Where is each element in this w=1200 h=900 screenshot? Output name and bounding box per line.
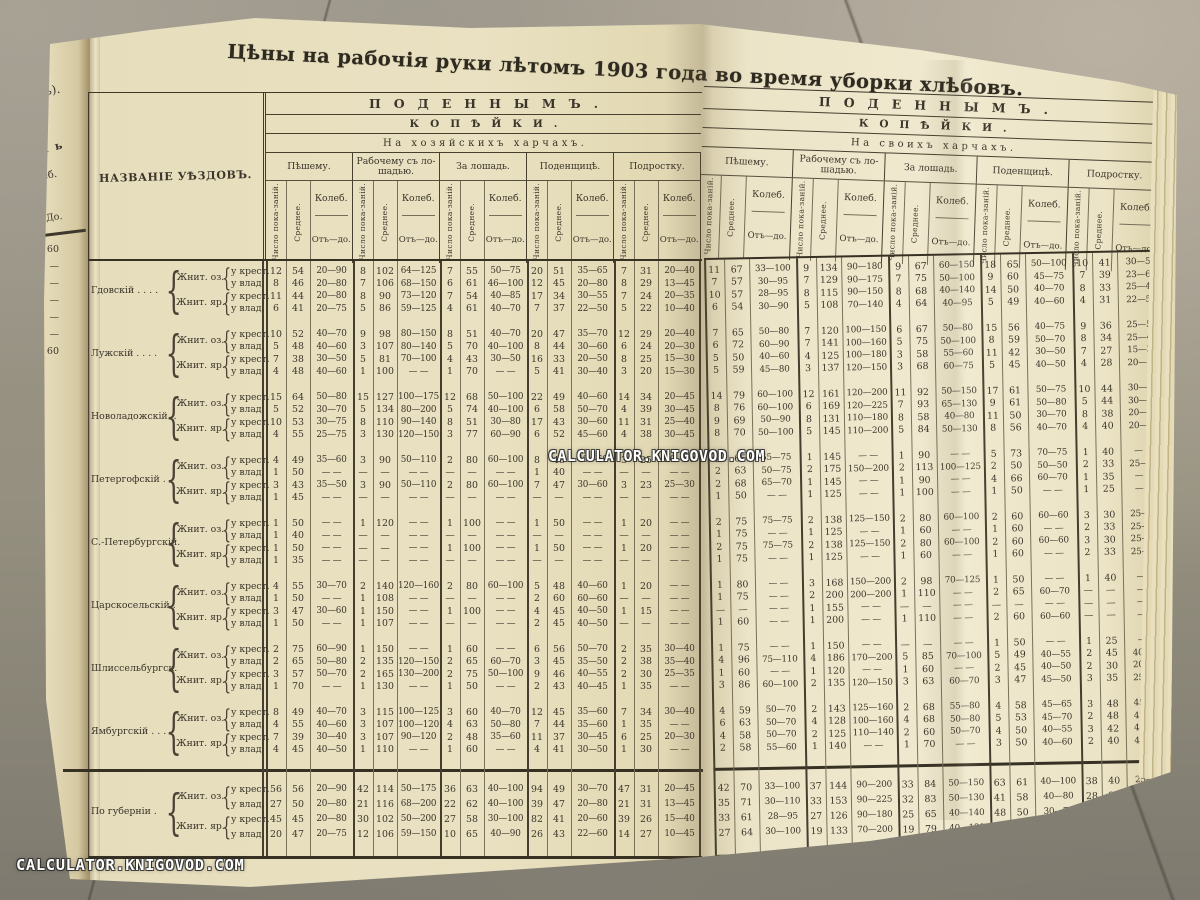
data-cell: — xyxy=(373,530,397,543)
data-cell: 169 xyxy=(819,400,844,413)
data-cell: 64 xyxy=(286,391,310,404)
brace-glyph: { xyxy=(222,812,231,841)
data-cell: 45—70 xyxy=(1033,711,1080,724)
data-cell: 61 xyxy=(460,303,484,316)
data-cell: 141 xyxy=(817,337,842,350)
data-cell: 80 xyxy=(460,479,484,492)
data-cell: 60 xyxy=(913,524,938,537)
data-cell: 60—100 xyxy=(484,479,527,492)
data-cell: 20 xyxy=(1082,818,1102,833)
data-cell: 50—110 xyxy=(397,479,440,492)
crop-brace: { xyxy=(223,391,231,416)
subheader-fluct-label: Колеб. xyxy=(402,181,435,216)
data-cell: 12 xyxy=(353,827,373,842)
data-cell: 35 xyxy=(714,795,734,810)
data-cell: 61 xyxy=(1002,384,1027,397)
data-cell: 60—100 xyxy=(484,580,527,593)
data-cell: 2 xyxy=(892,462,912,475)
data-cell: 20—40 xyxy=(658,265,701,278)
data-cell: — — xyxy=(397,605,440,618)
data-cell: 65 xyxy=(460,656,484,669)
data-cell: 107 xyxy=(373,719,397,732)
data-cell: 5 xyxy=(799,425,819,438)
data-cell: 60—90 xyxy=(750,338,797,351)
subheader-count: Число пока-заній. xyxy=(353,181,373,263)
data-cell: 130 xyxy=(373,681,397,694)
data-cell: 20—50 xyxy=(1127,817,1174,833)
data-cell: 33 xyxy=(547,353,571,366)
data-cell: 10—45 xyxy=(658,827,701,842)
data-cell: 2 xyxy=(527,593,547,606)
district-column-header: НАЗВАНІЕ УѢЗДОВЪ. xyxy=(89,93,266,259)
district-block: 76550—807120100—15066750—80155640—759362… xyxy=(705,319,1166,377)
data-cell: 50—75 xyxy=(1027,383,1074,396)
data-cell: 40 xyxy=(1096,445,1121,458)
data-cell: 115 xyxy=(817,286,842,299)
data-cell: 50—70 xyxy=(757,716,804,729)
data-cell: 12 xyxy=(527,706,547,719)
data-cell: — — xyxy=(847,601,894,614)
data-cell: 40 xyxy=(547,467,571,480)
prev-page-fragment: Отъ. xyxy=(5,204,29,218)
data-cell: 137 xyxy=(818,362,843,375)
data-cell: 8 xyxy=(353,416,373,429)
data-cell: 116 xyxy=(373,797,397,812)
data-cell: 50—80 xyxy=(484,719,527,732)
data-cell: — — xyxy=(310,542,353,555)
prev-page-rule xyxy=(0,229,86,242)
data-cell: 58 xyxy=(733,742,758,755)
data-cell: 5 xyxy=(1075,395,1095,408)
data-cell: 7 xyxy=(1074,345,1094,358)
data-cell: 60—70 xyxy=(1029,471,1076,484)
data-cell: 20—30 xyxy=(658,731,701,744)
data-cell: — xyxy=(440,618,460,631)
data-cell: 27 xyxy=(1094,344,1119,357)
data-cell: — — xyxy=(310,492,353,505)
data-cell: 57 xyxy=(286,668,310,681)
data-cell: 4 xyxy=(713,730,733,743)
data-cell: — xyxy=(527,555,547,568)
data-cell: 19 xyxy=(806,823,826,838)
data-cell: — — xyxy=(397,517,440,530)
crop-label: Жнит. яр. xyxy=(178,353,223,378)
data-cell: — — xyxy=(940,662,987,675)
data-cell: 2 xyxy=(614,643,634,656)
prev-page-footnote-line: ъ). xyxy=(0,540,40,557)
data-cell: 40—50 xyxy=(571,605,614,618)
data-cell: 125 xyxy=(820,488,845,501)
data-cell: 55—60 xyxy=(758,741,805,754)
data-cell: 11 xyxy=(266,290,286,303)
data-cell: 2 xyxy=(984,460,1004,473)
data-cell: 50 xyxy=(286,618,310,631)
data-cell: 3 xyxy=(988,674,1008,687)
data-cell: 41 xyxy=(1092,256,1117,269)
owner-label: у влад. xyxy=(231,593,266,606)
data-cell: 68 xyxy=(910,360,935,373)
data-cell: — — xyxy=(658,593,701,606)
data-cell: 30 xyxy=(1097,508,1122,521)
subheader-range: Колеб.Отъ—до. xyxy=(484,181,527,263)
data-cell: 30—40 xyxy=(658,706,701,719)
data-cell: 45—50 xyxy=(1033,673,1080,686)
data-cell: 5 xyxy=(797,299,817,312)
district-brace: { xyxy=(169,580,178,630)
data-cell: 55 xyxy=(460,265,484,278)
data-cell: 120—225 xyxy=(844,399,891,412)
data-cell: 9 xyxy=(980,271,1000,284)
photo-scene: мѣрахъ). ень Колеб. Отъ. До. 4260———————… xyxy=(0,0,1200,900)
table-right-header: ПОДЕННЫМЪ. КОПѢЙКИ. На своихъ харчахъ. П… xyxy=(698,86,1166,269)
owner-label: у крест. xyxy=(231,517,266,530)
data-cell: — — xyxy=(310,530,353,543)
data-cell: 40 xyxy=(1101,735,1126,748)
prev-page-footnote-line: ка- xyxy=(0,507,40,524)
data-cell: 28—95 xyxy=(759,809,806,825)
data-cell: 50 xyxy=(286,593,310,606)
data-cell: 8 xyxy=(614,353,634,366)
subheader-fluct-label: Колеб. xyxy=(1027,186,1061,222)
table-right-page: ПОДЕННЫМЪ. КОПѢЙКИ. На своихъ харчахъ. П… xyxy=(704,86,1166,253)
data-cell: 30—50 xyxy=(571,744,614,757)
district-name: Новоладожскій. . xyxy=(89,391,169,441)
data-cell: 81 xyxy=(373,353,397,366)
data-cell: 1 xyxy=(440,643,460,656)
subheader-average: Среднее. xyxy=(460,181,484,263)
data-cell: 37 xyxy=(547,731,571,744)
data-cell: 31 xyxy=(634,797,658,812)
data-cell: — xyxy=(614,593,634,606)
crop-label: Жнит. яр. xyxy=(178,542,223,567)
data-cell: 49 xyxy=(1001,296,1026,309)
group-subheaders: Число пока-заній.Среднее.Колеб.Отъ—до. xyxy=(790,178,884,263)
data-cell: 15—40 xyxy=(658,812,701,827)
header-group: Пѣшему.Число пока-заній.Среднее.Колеб.От… xyxy=(698,147,794,260)
district-block: 116733—100913490—18096760—150186550—1001… xyxy=(704,256,1165,314)
subheader-average-label: Среднее. xyxy=(819,201,829,240)
data-cell: 200 xyxy=(822,589,847,602)
data-cell: 59 xyxy=(732,704,757,717)
data-cell: 7 xyxy=(705,327,725,340)
data-cell: 25—35 xyxy=(658,668,701,681)
crop-label: Жнит. оз. xyxy=(178,580,223,605)
data-cell: 68 xyxy=(909,285,934,298)
data-cell: 145 xyxy=(820,475,845,488)
data-cell: 70 xyxy=(734,780,759,795)
data-cell: 110—140 xyxy=(850,727,897,740)
data-cell: 40—140 xyxy=(934,284,981,297)
data-cell: 1 xyxy=(985,523,1005,536)
data-cell: 1 xyxy=(353,366,373,379)
data-cell: 200 xyxy=(823,614,848,627)
data-cell: 50 xyxy=(286,797,310,812)
data-cell: — xyxy=(460,467,484,480)
data-cell: 33 xyxy=(714,810,734,825)
data-cell: 2 xyxy=(1077,521,1097,534)
data-cell: 21 xyxy=(614,797,634,812)
data-cell: 4 xyxy=(1073,294,1093,307)
data-cell: 11 xyxy=(983,410,1003,423)
data-cell: 2 xyxy=(614,668,634,681)
data-cell: 2 xyxy=(897,726,917,739)
data-cell: 7 xyxy=(888,273,908,286)
data-cell: 65 xyxy=(460,827,484,842)
data-cell: 92 xyxy=(910,386,935,399)
data-cell: 20—80 xyxy=(310,278,353,291)
data-cell: 1 xyxy=(353,593,373,606)
data-cell: — — xyxy=(484,555,527,568)
data-cell: 2 xyxy=(709,541,729,554)
data-cell: 2 xyxy=(614,656,634,669)
data-cell: 25—30 xyxy=(658,479,701,492)
data-cell: 1 xyxy=(614,542,634,555)
owner-label: у крест. xyxy=(231,479,266,492)
data-cell: 11 xyxy=(614,416,634,429)
data-cell: 3 xyxy=(440,706,460,719)
data-cell: 61 xyxy=(734,810,759,825)
data-cell: 6 xyxy=(705,339,725,352)
subheader-average-label: Среднее. xyxy=(911,204,921,243)
data-cell: — xyxy=(527,530,547,543)
header-group: Рабочему съ ло-шадью.Число пока-заній.Ср… xyxy=(353,153,440,263)
data-cell: 40—70 xyxy=(484,328,527,341)
data-cell: 1 xyxy=(711,667,731,680)
data-cell: 50 xyxy=(1007,636,1032,649)
data-cell: 8 xyxy=(1073,282,1093,295)
data-cell: 64 xyxy=(734,825,759,840)
data-cell: 27 xyxy=(440,812,460,827)
data-cell: 200—200 xyxy=(847,588,894,601)
data-cell: 14 xyxy=(981,284,1001,297)
crop-label: Жнит. оз. xyxy=(178,706,223,731)
data-cell: 3 xyxy=(1077,509,1097,522)
data-cell: 2 xyxy=(802,589,822,602)
data-cell: 40—90 xyxy=(484,827,527,842)
data-cell: 48 xyxy=(286,366,310,379)
data-cell: 60—150 xyxy=(933,259,980,272)
owner-label: у влад. xyxy=(231,618,266,631)
data-cell: 77 xyxy=(460,429,484,442)
data-cell: 4 xyxy=(266,744,286,757)
district-block: Лужскій . . . .{Жнит. оз.{Жнит. яр.{у кр… xyxy=(89,328,702,378)
data-cell: 30—40 xyxy=(571,366,614,379)
data-cell: 32 xyxy=(898,792,918,807)
data-cell: — — xyxy=(1029,484,1076,497)
owner-label: у влад. xyxy=(231,555,266,568)
crop-label: Жнит. оз. xyxy=(178,328,223,353)
data-cell: — xyxy=(614,492,634,505)
data-cell: 20—45 xyxy=(658,782,701,797)
data-cell: 68 xyxy=(728,477,753,490)
data-cell: 38 xyxy=(1082,773,1102,788)
data-cell: 70—100 xyxy=(940,649,987,662)
district-block: 180— —3168150—20029870—125150— —140— —17… xyxy=(710,571,1171,629)
data-cell: 38 xyxy=(634,429,658,442)
data-cell: 3 xyxy=(798,362,818,375)
data-cell: — xyxy=(634,618,658,631)
data-cell: 102 xyxy=(373,265,397,278)
band-food: На хозяйскихъ харчахъ. xyxy=(266,134,701,153)
data-cell: 45 xyxy=(1007,661,1032,674)
data-cell: 3 xyxy=(353,341,373,354)
data-cell: 2 xyxy=(800,463,820,476)
data-cell: 125 xyxy=(818,349,843,362)
data-cell: 2 xyxy=(894,575,914,588)
data-cell: 45 xyxy=(547,706,571,719)
subheader-average: Среднее. xyxy=(902,182,930,265)
crop-brace: { xyxy=(223,517,231,542)
data-cell: — xyxy=(730,603,755,616)
subheader-range: Колеб.Отъ—до. xyxy=(834,180,883,264)
data-cell: 45 xyxy=(547,618,571,631)
data-cell: 90—225 xyxy=(851,792,898,808)
data-cell: 1 xyxy=(527,517,547,530)
data-cell: 50—70 xyxy=(942,725,989,738)
group-subheaders: Число пока-заній.Среднее.Колеб.Отъ—до. xyxy=(266,181,352,263)
data-cell: 30—60 xyxy=(310,605,353,618)
data-cell: 12 xyxy=(798,388,818,401)
data-cell: — — xyxy=(484,467,527,480)
data-cell: 5 xyxy=(440,341,460,354)
crop-label: Жнит. яр. xyxy=(178,668,223,693)
data-cell: 2 xyxy=(804,703,824,716)
data-cell: — xyxy=(353,530,373,543)
data-cell: 56 xyxy=(286,782,310,797)
data-cell: 8 xyxy=(527,341,547,354)
owner-label: у влад. xyxy=(231,467,266,480)
prev-page-fragment: До. xyxy=(45,211,63,224)
prev-page-values: 4260——————————260 xyxy=(0,244,66,363)
data-cell: 34 xyxy=(634,706,658,719)
data-cell: 45 xyxy=(266,812,286,827)
data-cell: 34 xyxy=(634,391,658,404)
data-cell: 30—100 xyxy=(759,824,806,840)
data-cell: — xyxy=(614,555,634,568)
brace-glyph: { xyxy=(165,514,181,571)
data-cell: 65 xyxy=(1000,258,1025,271)
data-cell: 120—150 xyxy=(843,361,890,374)
data-cell: 1 xyxy=(897,739,917,752)
district-name: Ямбургскій . . . xyxy=(89,706,169,756)
crop-brace: { xyxy=(223,479,231,504)
data-cell: — — xyxy=(571,517,614,530)
data-cell: 18 xyxy=(980,259,1000,272)
data-cell: 40—45 xyxy=(571,681,614,694)
data-cell: 4 xyxy=(440,719,460,732)
data-cell: 39 xyxy=(614,812,634,827)
data-cell: 50 xyxy=(286,517,310,530)
data-cell: 125 xyxy=(821,551,846,564)
data-cell: — xyxy=(373,555,397,568)
data-cell: 40—100 xyxy=(484,782,527,797)
district-brace: { xyxy=(169,517,178,567)
data-cell: 1 xyxy=(895,613,915,626)
data-cell: 43 xyxy=(286,479,310,492)
data-cell: — — xyxy=(658,467,701,480)
data-cell: — — xyxy=(397,366,440,379)
data-cell: 1 xyxy=(1079,635,1099,648)
subheader-count-label: Число пока-заній. xyxy=(888,184,899,261)
data-cell: 60 xyxy=(917,726,942,739)
data-cell: 113 xyxy=(912,461,937,474)
data-cell: 3 xyxy=(266,479,286,492)
data-cell: 70—140 xyxy=(842,298,889,311)
column-groups: Пѣшему.Число пока-заній.Среднее.Колеб.От… xyxy=(266,153,701,263)
data-cell: 40—50 xyxy=(1032,660,1079,673)
data-cell: 1 xyxy=(266,517,286,530)
data-cell: — xyxy=(460,555,484,568)
data-cell: 1 xyxy=(353,744,373,757)
data-cell: 3 xyxy=(890,361,910,374)
header-group: Подростку.Число пока-заній.Среднее.Колеб… xyxy=(614,153,701,263)
data-cell: — — xyxy=(571,467,614,480)
data-cell: 2 xyxy=(896,701,916,714)
data-cell: 20—80 xyxy=(310,290,353,303)
prev-page-value: 60 xyxy=(33,346,63,363)
data-cell: 35 xyxy=(1096,470,1121,483)
data-cell: 25 xyxy=(634,353,658,366)
data-cell: 4 xyxy=(266,366,286,379)
data-cell: 125 xyxy=(821,526,846,539)
data-cell: 1 xyxy=(353,618,373,631)
data-cell: — — xyxy=(845,475,892,488)
data-cell: 2 xyxy=(1080,710,1100,723)
data-cell: 60 xyxy=(1005,510,1030,523)
data-cell: 120 xyxy=(823,664,848,677)
data-cell: 5 xyxy=(895,651,915,664)
data-cell: — — xyxy=(937,485,984,498)
data-cell: 40—55 xyxy=(571,668,614,681)
data-cell: 6 xyxy=(527,429,547,442)
data-cell: 3 xyxy=(353,479,373,492)
data-cell: 5 xyxy=(266,341,286,354)
data-cell: — — xyxy=(755,590,802,603)
owner-label: у крест. xyxy=(231,353,266,366)
subheader-average: Среднее. xyxy=(634,181,658,263)
district-brace: { xyxy=(169,328,178,378)
data-cell: 90—180 xyxy=(851,807,898,823)
data-cell: — — xyxy=(658,681,701,694)
data-cell: 50—70 xyxy=(571,404,614,417)
data-cell: — — xyxy=(850,739,897,752)
data-cell: 5 xyxy=(440,404,460,417)
data-cell: 30—50 xyxy=(310,353,353,366)
data-cell: 30—60 xyxy=(571,479,614,492)
data-cell: 33—100 xyxy=(759,779,806,795)
district-brace: { xyxy=(169,454,178,504)
data-cell: 90 xyxy=(912,474,937,487)
data-cell: 4 xyxy=(527,605,547,618)
data-cell: 58 xyxy=(733,729,758,742)
data-cell: 31 xyxy=(634,416,658,429)
data-cell: — — xyxy=(1032,635,1079,648)
data-cell: 60—90 xyxy=(310,643,353,656)
data-cell: 8 xyxy=(614,278,634,291)
data-cell: 8 xyxy=(799,413,819,426)
data-cell: 40—70 xyxy=(484,303,527,316)
data-cell: 60 xyxy=(915,663,940,676)
data-cell: 50—150 xyxy=(935,385,982,398)
data-cell: 150 xyxy=(823,639,848,652)
data-cell: 75 xyxy=(729,553,754,566)
data-cell: 50—80 xyxy=(750,325,797,338)
data-cell: — — xyxy=(484,643,527,656)
data-cell: 25 xyxy=(1096,483,1121,496)
data-cell: 63 xyxy=(460,782,484,797)
data-cell: — — xyxy=(755,577,802,590)
data-cell: 22 xyxy=(634,303,658,316)
